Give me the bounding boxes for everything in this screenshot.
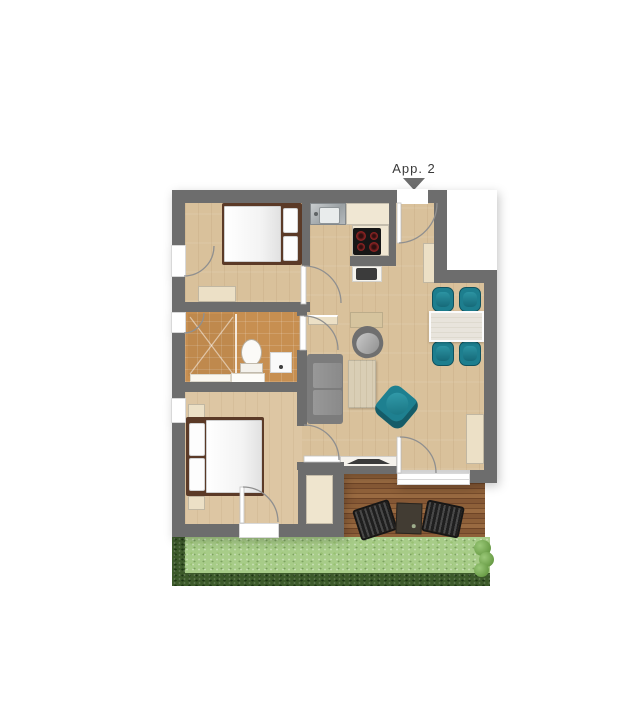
window-bathroom — [171, 312, 186, 333]
burner — [370, 232, 378, 240]
nightstand — [188, 496, 205, 510]
washer-door — [279, 365, 283, 369]
bed-pillow — [283, 236, 298, 261]
bedroom-sideboard — [198, 286, 236, 302]
sink-faucet — [314, 212, 318, 216]
wall-right-lower — [484, 270, 497, 483]
wall-top-left — [172, 190, 398, 203]
coffee-machine — [356, 268, 377, 280]
shower — [188, 314, 235, 376]
sofa — [307, 354, 343, 424]
garden-door-gap — [239, 523, 279, 538]
bed-pillow — [283, 208, 298, 233]
wall-bedroom-bath — [185, 302, 310, 312]
toilet-tank — [240, 363, 263, 373]
bed-duvet — [224, 206, 281, 262]
washing-machine — [270, 352, 292, 373]
nightstand — [188, 404, 205, 418]
chair-seat — [354, 331, 381, 356]
wall-bedroom-kitchen — [302, 203, 310, 266]
coffee-table — [348, 360, 376, 408]
wall-left — [172, 190, 185, 537]
sofa-cushion — [313, 363, 342, 388]
wall-bath-hall-b — [297, 350, 307, 390]
wall-bath-bedroom2 — [185, 382, 297, 392]
sill-line — [398, 479, 469, 480]
wall-bottom — [172, 524, 302, 537]
bath-mat — [190, 374, 231, 382]
bed-pillow — [189, 423, 205, 456]
wall-bath-hall-a — [297, 312, 307, 316]
wall-kitchen-hall — [389, 203, 396, 258]
burner — [356, 231, 366, 241]
sofa-cushion — [313, 390, 342, 415]
wall-bottom-right — [470, 470, 497, 483]
bed-duvet — [206, 420, 262, 493]
entrance-door-gap — [397, 189, 428, 204]
wall-tv — [344, 466, 397, 474]
dining-chair — [459, 287, 481, 312]
dining-chair — [432, 341, 454, 366]
wall-bedroom2-living-b — [297, 462, 307, 470]
armchair-seat — [382, 388, 413, 419]
burner — [357, 243, 365, 251]
chair-seat — [463, 346, 477, 361]
chair-seat — [436, 292, 450, 307]
bed-pillow — [189, 458, 205, 491]
closet-niche — [306, 475, 333, 524]
dining-chair — [459, 341, 481, 366]
wall-kitchen-stub — [350, 256, 396, 266]
chair-seat — [436, 346, 450, 361]
wall-shelf — [308, 315, 338, 325]
wall-bedroom2-living-a — [297, 390, 307, 426]
dining-chair — [432, 287, 454, 312]
burner — [369, 242, 379, 252]
apartment-building — [0, 0, 640, 727]
window-bedroom-top — [171, 245, 186, 277]
dining-table — [429, 311, 484, 342]
shower-glass-divider — [235, 314, 237, 376]
window-bedroom-bottom — [171, 398, 186, 423]
cooktop — [353, 228, 381, 255]
kitchen-sink-unit — [310, 203, 346, 225]
exterior-notch — [447, 190, 497, 270]
sink-basin — [319, 207, 340, 224]
toilet-bowl — [241, 339, 262, 366]
terrace-door-sill — [397, 473, 470, 485]
floorplan-canvas: App. 2 — [0, 0, 640, 727]
chair-seat — [463, 292, 477, 307]
dining-sideboard — [466, 414, 484, 464]
